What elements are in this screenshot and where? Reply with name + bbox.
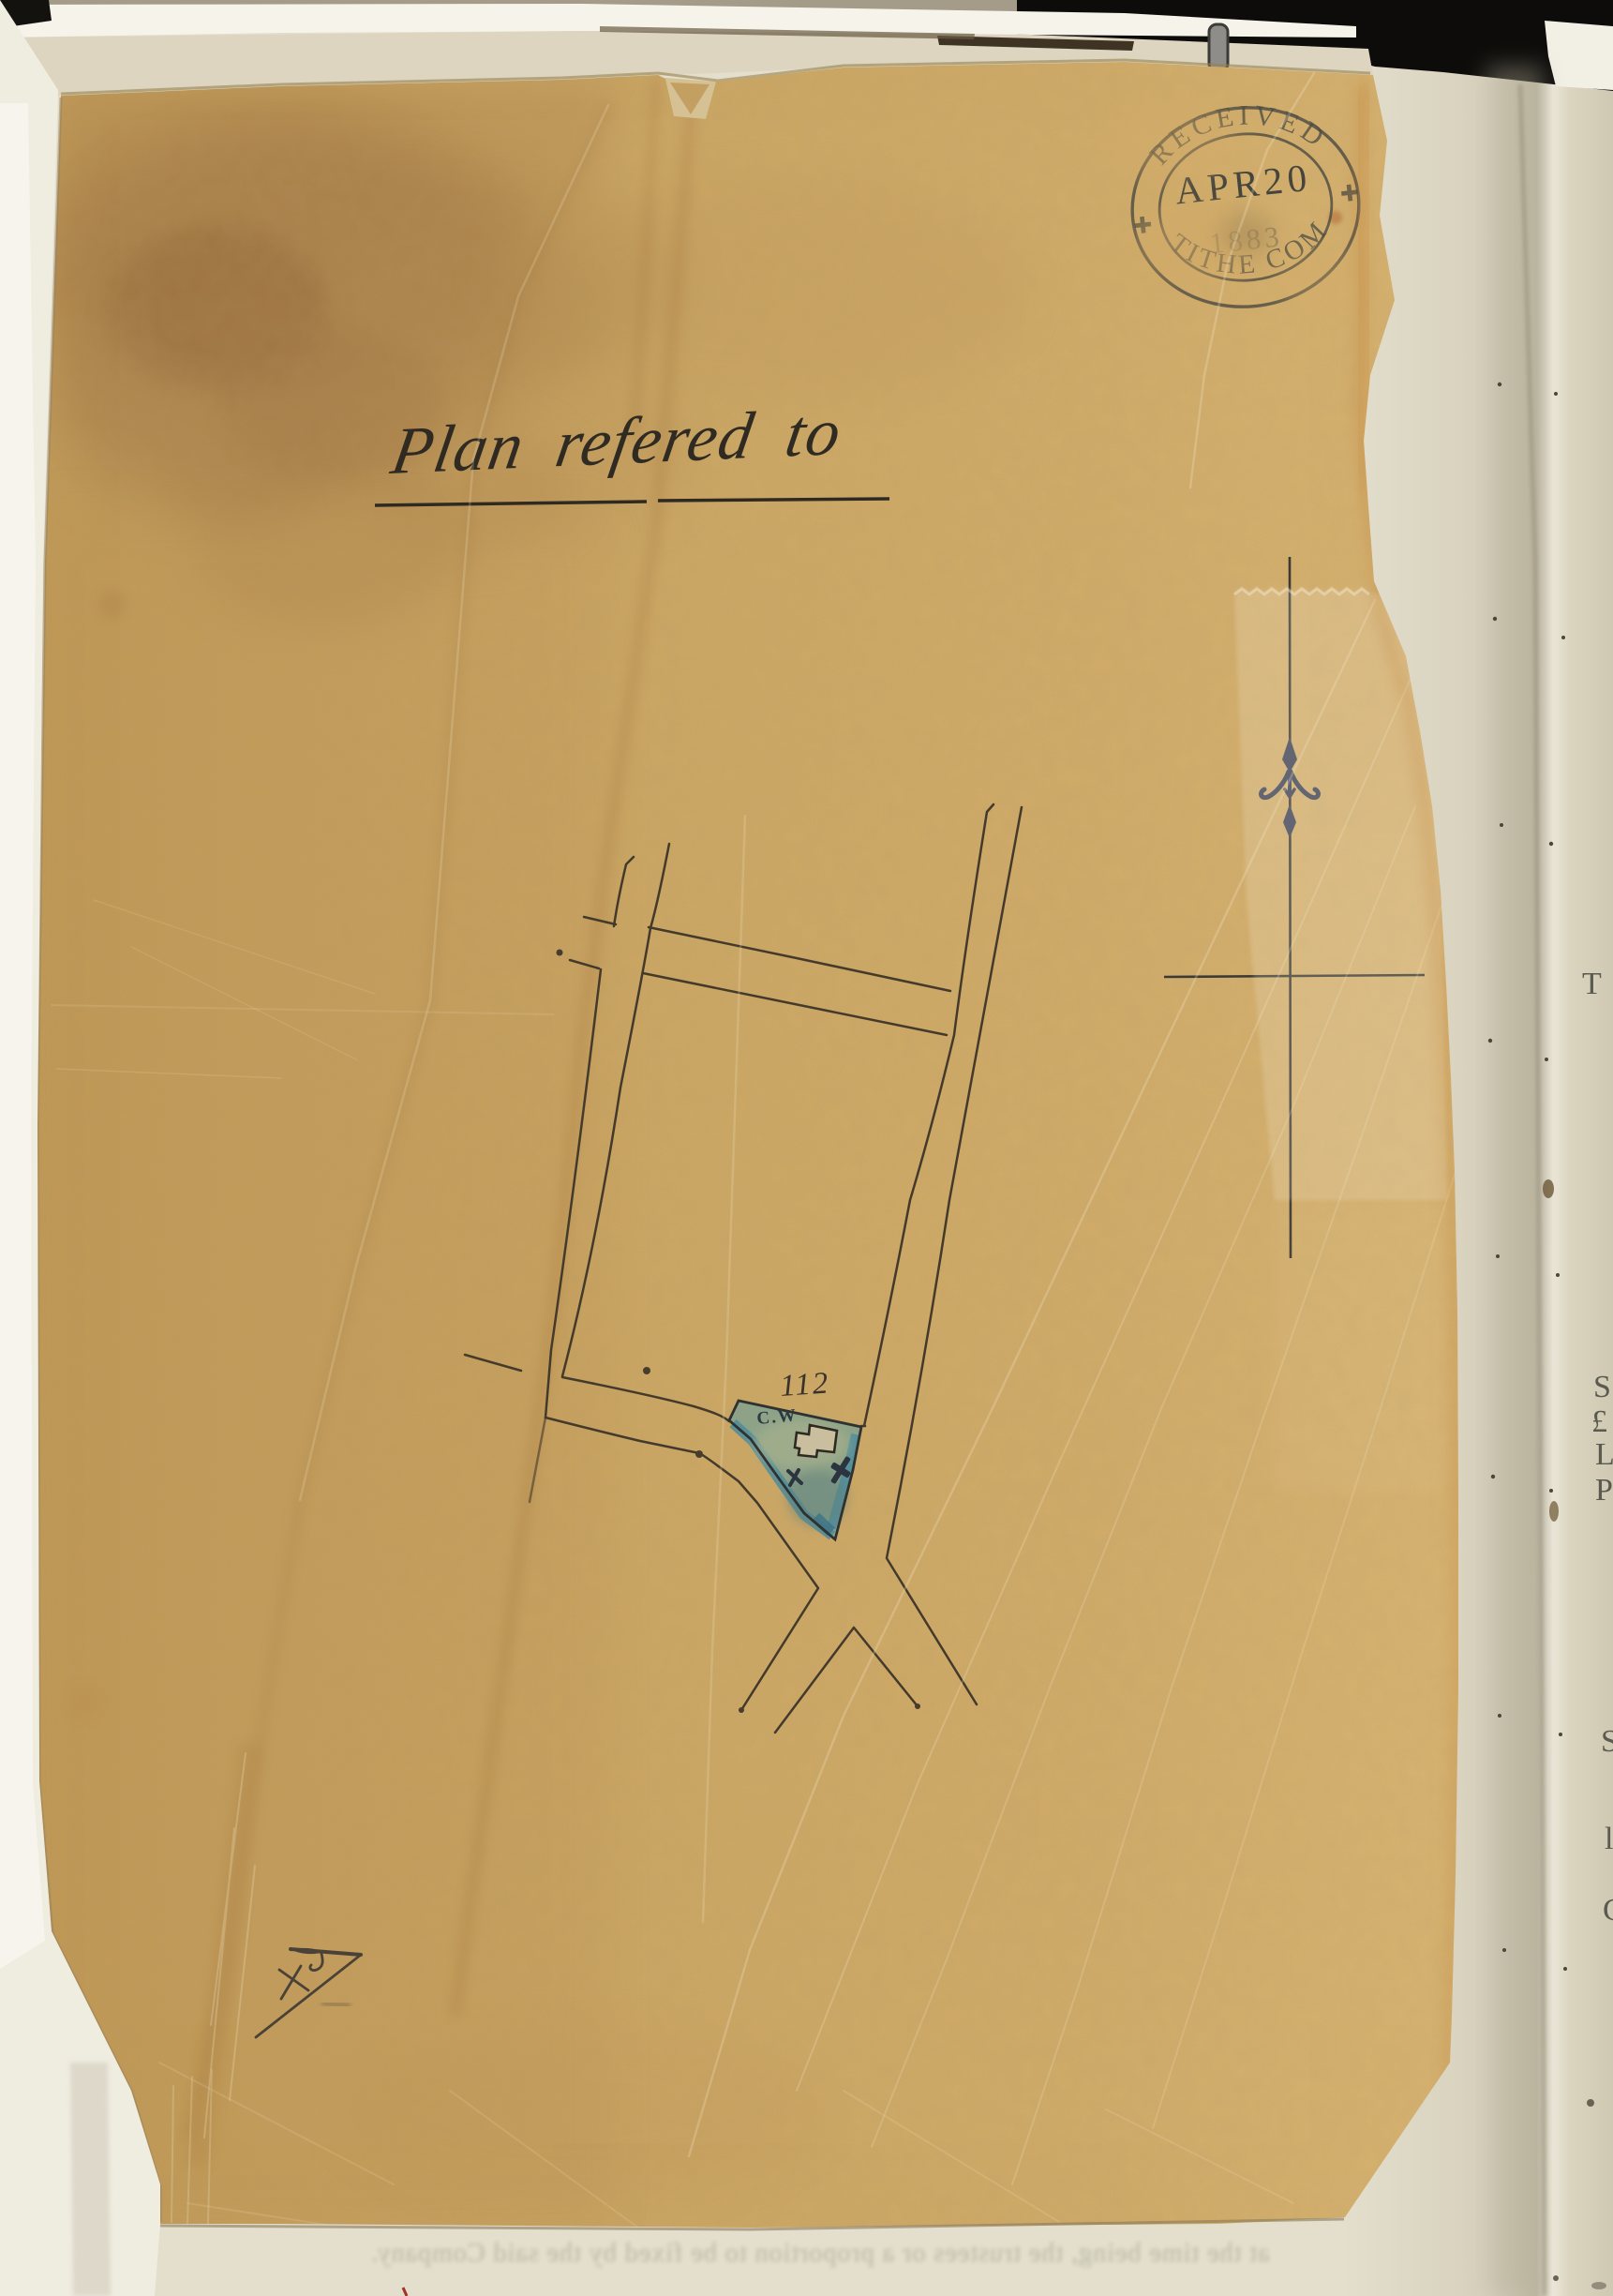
svg-text:£: £ [1591, 1404, 1607, 1439]
svg-text:S: S [1593, 1370, 1611, 1404]
svg-text:l: l [1605, 1822, 1613, 1856]
svg-text:C.W: C.W [756, 1405, 799, 1429]
svg-text:P: P [1595, 1473, 1613, 1508]
svg-text:S: S [1601, 1724, 1613, 1759]
svg-text:C: C [1603, 1893, 1613, 1928]
svg-text:112: 112 [779, 1366, 830, 1403]
svg-text:L: L [1595, 1437, 1613, 1472]
svg-text:at the time being, the trustee: at the time being, the trustees or a pro… [370, 2239, 1269, 2268]
svg-text:T: T [1582, 967, 1602, 1001]
